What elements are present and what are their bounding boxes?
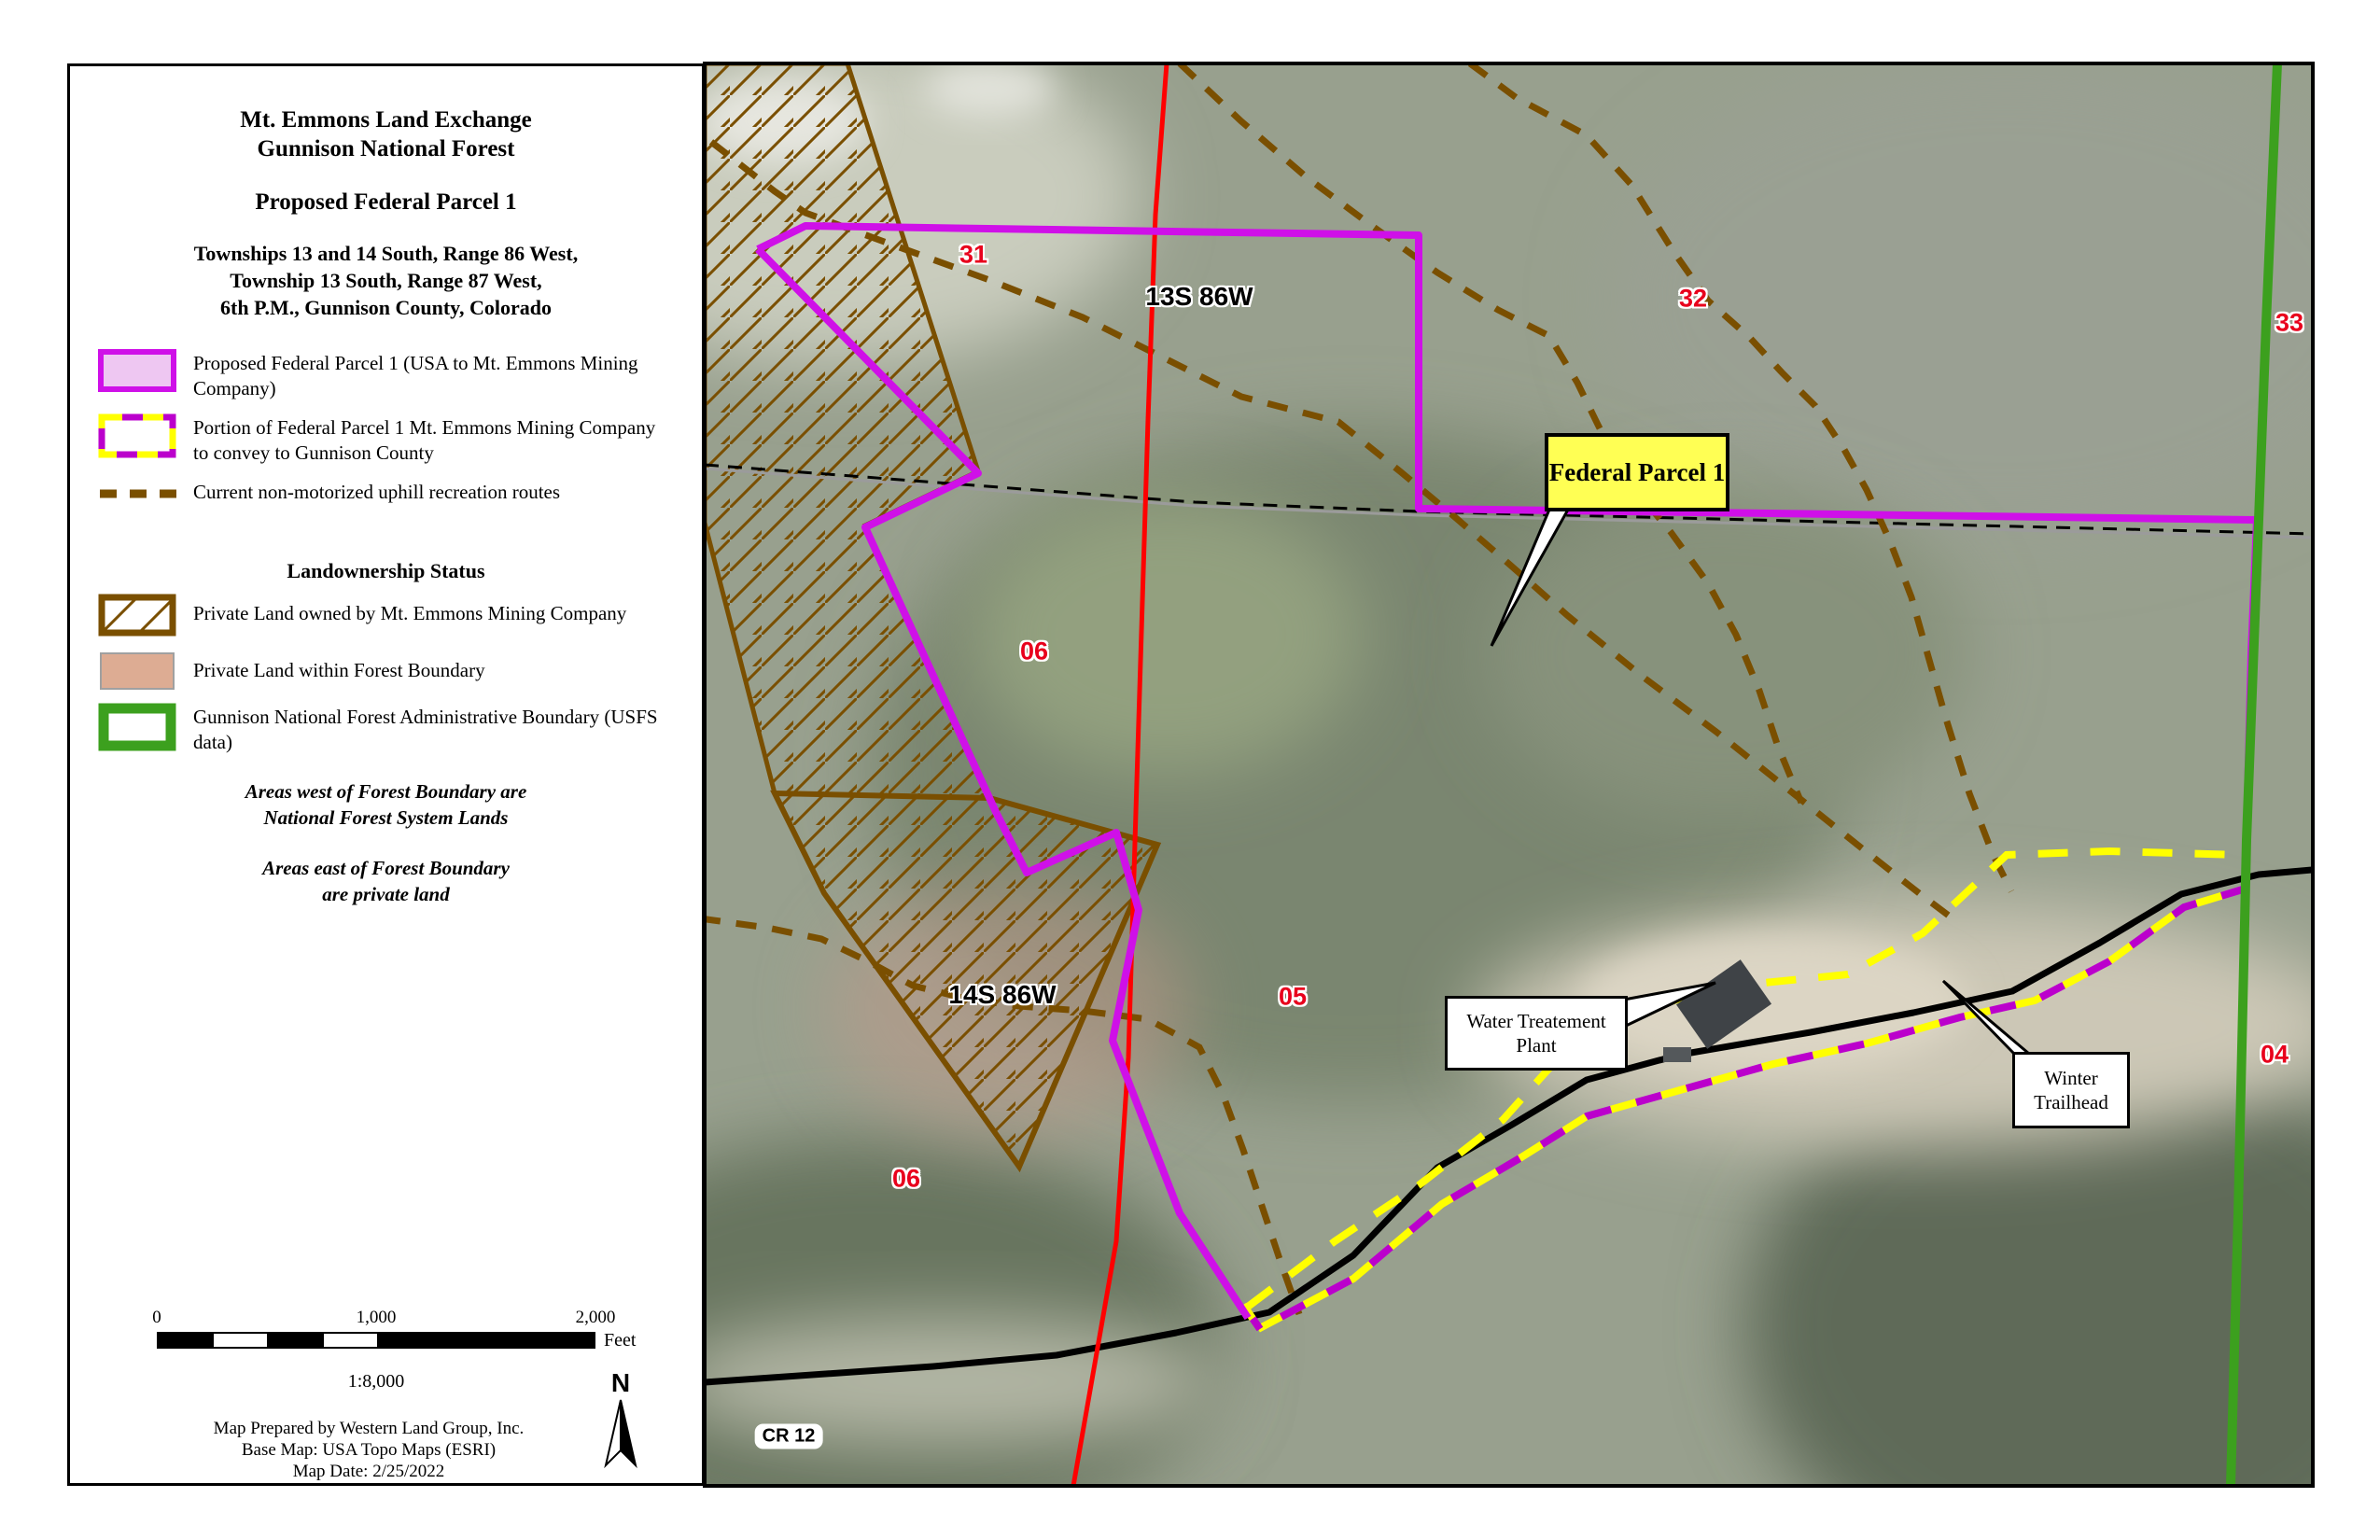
north-arrow: N — [602, 1368, 639, 1474]
township-label-13s86w: 13S 86W — [1145, 282, 1253, 312]
water-callout-line1: Water Treatement — [1448, 1009, 1625, 1033]
legend-item-private-forest: Private Land within Forest Boundary — [98, 651, 665, 692]
note-east-line2: are private land — [70, 881, 702, 907]
private-memc-swatch — [98, 594, 176, 637]
legend-item-parcel: Proposed Federal Parcel 1 (USA to Mt. Em… — [98, 349, 665, 401]
section-label-06-upper: 06 — [1020, 637, 1048, 666]
note-east: Areas east of Forest Boundary are privat… — [70, 855, 702, 907]
section-label-04: 04 — [2261, 1041, 2289, 1070]
water-treatment-callout: Water Treatement Plant — [1445, 996, 1628, 1071]
section-label-33: 33 — [2275, 309, 2303, 338]
convey-swatch — [98, 413, 176, 458]
legend-item-convey: Portion of Federal Parcel 1 Mt. Emmons M… — [98, 413, 665, 466]
note-west: Areas west of Forest Boundary are Nation… — [70, 778, 702, 831]
parcel-swatch — [98, 349, 176, 392]
scalebar-unit: Feet — [604, 1330, 636, 1351]
forest-boundary-swatch — [98, 703, 176, 751]
legend-item-parcel-label: Proposed Federal Parcel 1 (USA to Mt. Em… — [193, 349, 665, 401]
map-subtitle: Proposed Federal Parcel 1 — [70, 189, 702, 216]
credit-line2: Base Map: USA Topo Maps (ESRI) — [70, 1439, 667, 1461]
scalebar-ratio: 1:8,000 — [348, 1371, 405, 1393]
legend-item-private-memc: Private Land owned by Mt. Emmons Mining … — [98, 594, 665, 637]
note-west-line2: National Forest System Lands — [70, 805, 702, 831]
north-label: N — [602, 1368, 639, 1398]
credits: Map Prepared by Western Land Group, Inc.… — [70, 1418, 667, 1482]
road-label-cr12: CR 12 — [755, 1424, 823, 1449]
note-east-line1: Areas east of Forest Boundary — [70, 855, 702, 881]
scalebar-tick-0: 0 — [152, 1308, 161, 1328]
federal-parcel-1-callout-text: Federal Parcel 1 — [1549, 458, 1725, 487]
landownership-heading: Landownership Status — [70, 559, 702, 583]
township-line-2: Township 13 South, Range 87 West, — [70, 267, 702, 294]
legend-item-private-forest-label: Private Land within Forest Boundary — [193, 651, 665, 683]
map-title-line2: Gunnison National Forest — [70, 134, 702, 163]
legend-item-forest-boundary: Gunnison National Forest Administrative … — [98, 703, 665, 755]
legend-panel: Mt. Emmons Land Exchange Gunnison Nation… — [67, 63, 705, 1486]
map-title-line1: Mt. Emmons Land Exchange — [70, 105, 702, 134]
legend-item-trails-label: Current non-motorized uphill recreation … — [193, 480, 665, 505]
winter-trailhead-callout: Winter Trailhead — [2012, 1052, 2130, 1128]
scalebar-bar — [157, 1332, 595, 1349]
section-label-06-lower: 06 — [892, 1165, 920, 1194]
legend-item-convey-label: Portion of Federal Parcel 1 Mt. Emmons M… — [193, 413, 665, 466]
winter-callout-line1: Winter — [2015, 1066, 2127, 1090]
trail-swatch — [98, 480, 176, 508]
legend-item-forest-boundary-label: Gunnison National Forest Administrative … — [193, 703, 665, 755]
credit-line3: Map Date: 2/25/2022 — [70, 1461, 667, 1482]
township-line-1: Townships 13 and 14 South, Range 86 West… — [70, 240, 702, 267]
township-label-14s86w: 14S 86W — [948, 980, 1056, 1010]
section-label-05: 05 — [1279, 983, 1307, 1012]
section-label-32: 32 — [1679, 285, 1707, 314]
scalebar-tick-2000: 2,000 — [576, 1308, 616, 1328]
winter-callout-line2: Trailhead — [2015, 1090, 2127, 1114]
page: 31 32 33 04 05 06 06 13S 86W 14S 86W CR … — [0, 0, 2380, 1540]
section-label-31: 31 — [959, 241, 987, 270]
credit-line1: Map Prepared by Western Land Group, Inc. — [70, 1418, 667, 1439]
legend-item-private-memc-label: Private Land owned by Mt. Emmons Mining … — [193, 594, 665, 626]
water-callout-line2: Plant — [1448, 1033, 1625, 1057]
north-arrow-icon — [602, 1398, 639, 1469]
scalebar-tick-1000: 1,000 — [357, 1308, 397, 1328]
township-line-3: 6th P.M., Gunnison County, Colorado — [70, 294, 702, 321]
private-forest-swatch — [98, 651, 176, 692]
note-west-line1: Areas west of Forest Boundary are — [70, 778, 702, 805]
title-block: Mt. Emmons Land Exchange Gunnison Nation… — [70, 105, 702, 321]
legend-item-trails: Current non-motorized uphill recreation … — [98, 480, 665, 508]
federal-parcel-1-callout: Federal Parcel 1 — [1545, 433, 1729, 511]
